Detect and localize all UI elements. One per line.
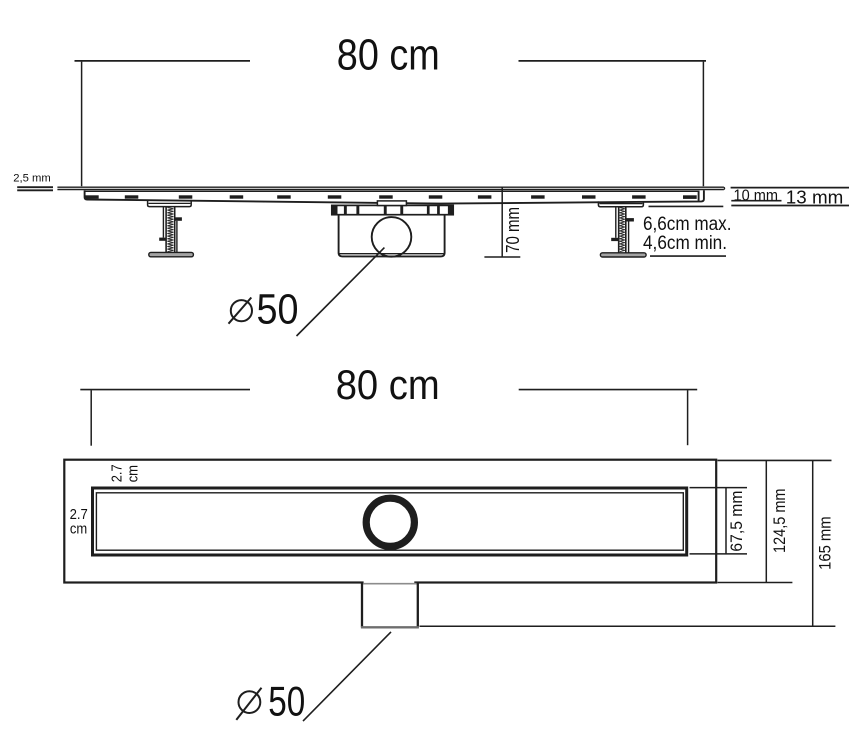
- svg-text:2,5 mm: 2,5 mm: [13, 173, 51, 185]
- svg-text:13 mm: 13 mm: [786, 187, 844, 207]
- svg-text:cm: cm: [70, 521, 87, 538]
- svg-text:50: 50: [257, 286, 299, 334]
- svg-text:2.7: 2.7: [109, 464, 126, 482]
- svg-text:4,6cm min.: 4,6cm min.: [643, 233, 727, 254]
- svg-text:cm: cm: [124, 465, 141, 482]
- svg-text:50: 50: [268, 677, 305, 724]
- svg-text:70 mm: 70 mm: [503, 207, 523, 253]
- svg-text:165 mm: 165 mm: [815, 516, 834, 570]
- svg-text:10 mm: 10 mm: [734, 188, 779, 205]
- svg-text:80 cm: 80 cm: [336, 361, 440, 408]
- svg-text:80 cm: 80 cm: [337, 31, 440, 80]
- svg-text:67,5 mm: 67,5 mm: [727, 491, 746, 552]
- svg-text:124,5 mm: 124,5 mm: [770, 489, 789, 554]
